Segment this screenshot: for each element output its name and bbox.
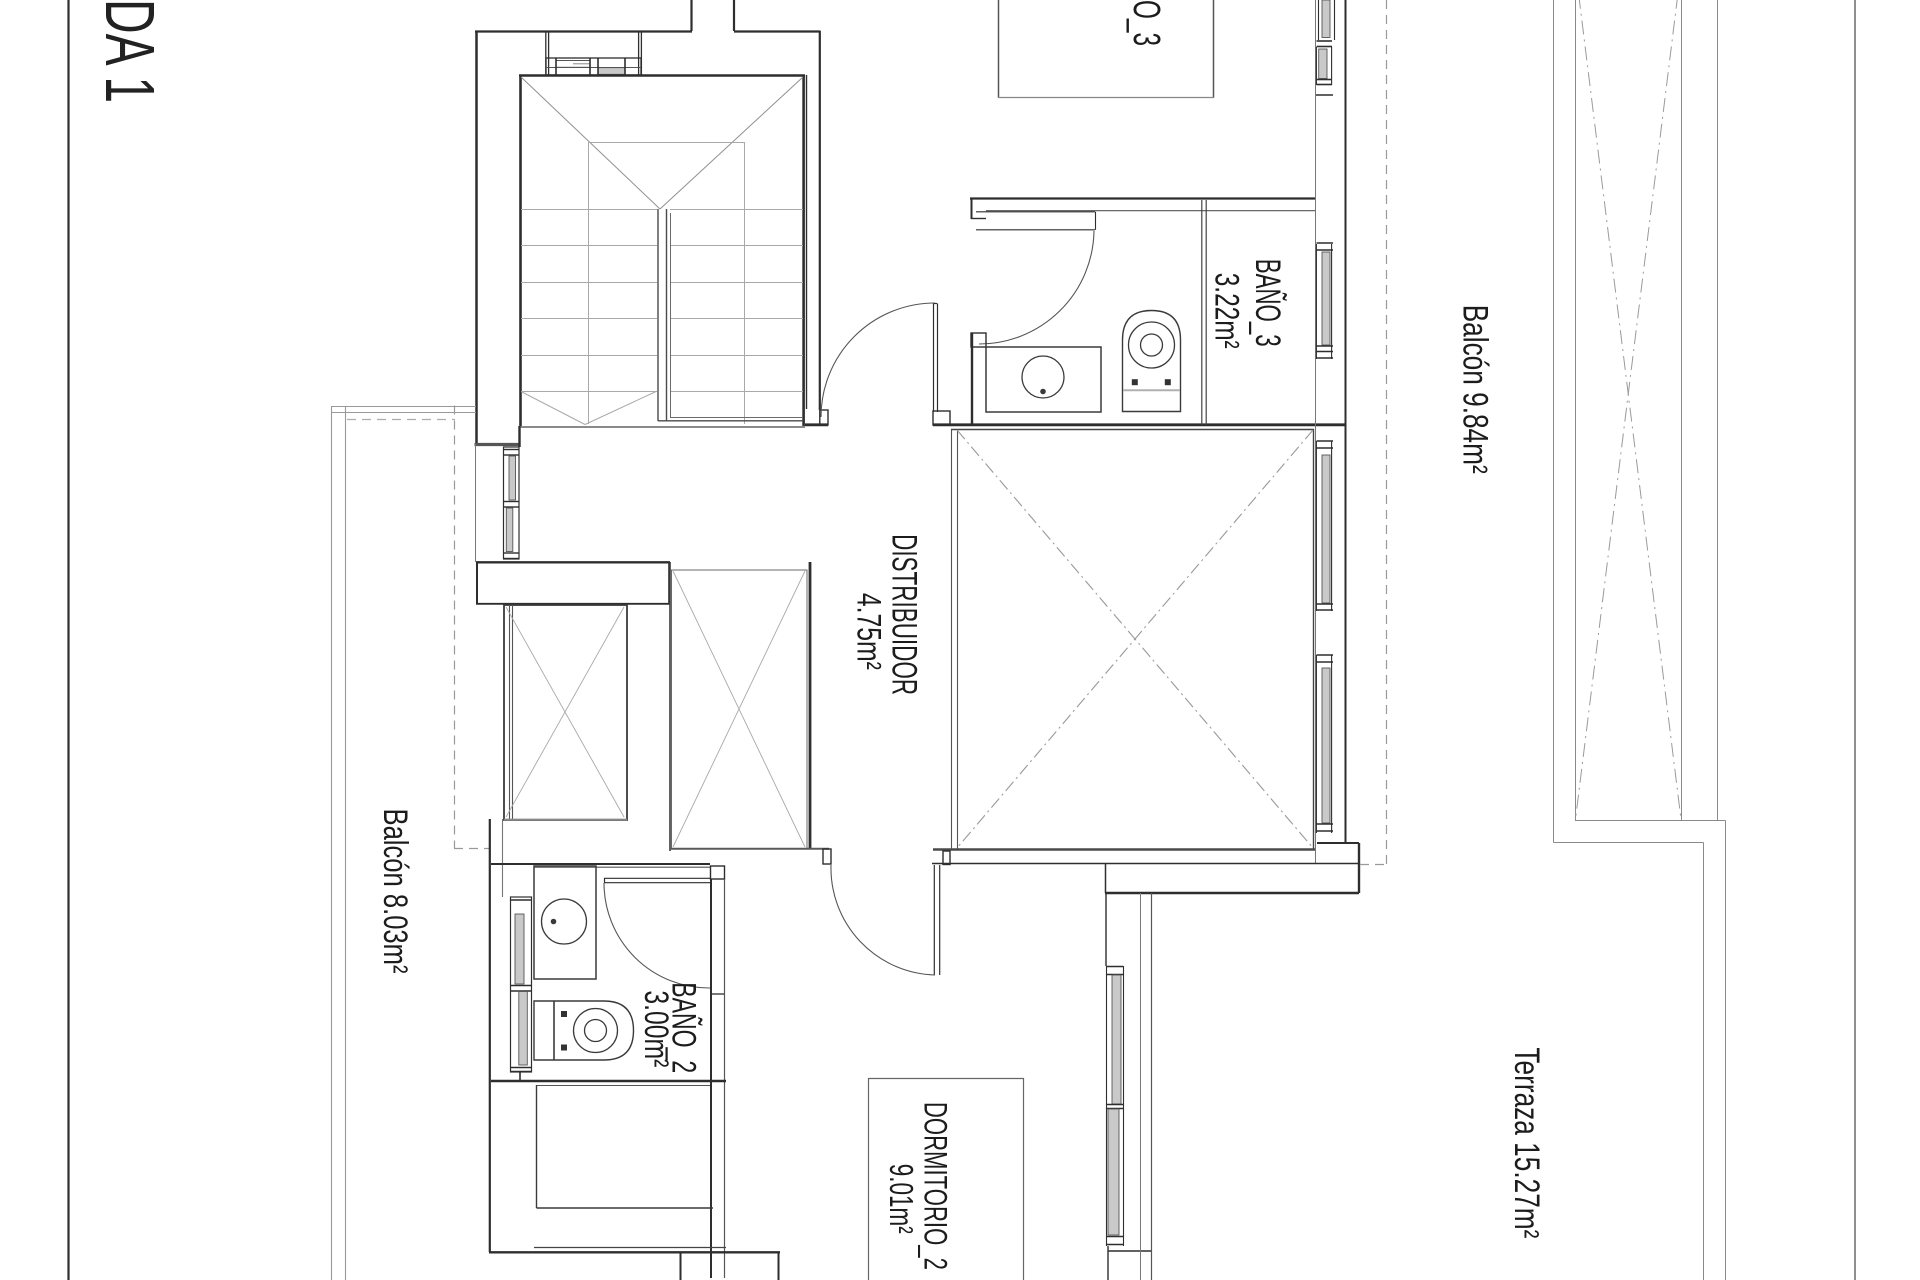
svg-text:4.75m²: 4.75m² <box>849 593 887 670</box>
svg-text:BAÑO_3: BAÑO_3 <box>1248 259 1287 347</box>
svg-text:Terraza 15.27m²: Terraza 15.27m² <box>1507 1047 1546 1238</box>
svg-text:O_3: O_3 <box>1125 0 1167 46</box>
svg-text:3.00m²: 3.00m² <box>637 990 675 1067</box>
svg-text:DA 1: DA 1 <box>91 0 169 103</box>
svg-text:Balcón 8.03m²: Balcón 8.03m² <box>376 809 414 974</box>
svg-text:3.22m²: 3.22m² <box>1208 273 1246 349</box>
svg-text:9.01m²: 9.01m² <box>883 1164 920 1234</box>
svg-text:Balcón 9.84m²: Balcón 9.84m² <box>1455 305 1494 474</box>
svg-text:DISTRIBUIDOR: DISTRIBUIDOR <box>884 534 923 695</box>
svg-text:DORMITORIO_2: DORMITORIO_2 <box>918 1102 954 1270</box>
